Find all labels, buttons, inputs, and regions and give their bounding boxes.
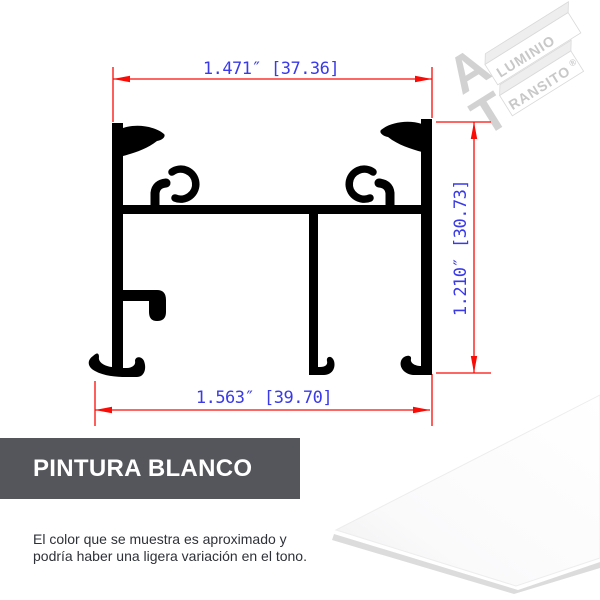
right-dim-arrow-bottom [471,356,477,373]
profile-right-clip-c [349,169,373,199]
profile-left-leg [112,123,123,373]
profile-right-foot [401,340,432,375]
bottom-dimension-label: 1.563″ [39.70] [196,388,332,408]
color-disclaimer: El color que se muestra es aproximado y … [33,531,307,565]
technical-drawing-canvas: A T LUMINIO RANSITO ® [0,0,600,600]
disclaimer-line-2: podría haber una ligera variación en el … [33,548,307,565]
brand-watermark: A T LUMINIO RANSITO ® [436,0,600,147]
right-dimension-label: 1.210″ [30.73] [451,180,471,316]
top-dim-arrow-right [415,76,432,82]
bottom-dim-arrow-right [413,407,430,413]
profile-left-top-fin [123,126,165,156]
top-dimension-label: 1.471″ [37.36] [203,59,339,79]
profile-left-foot [89,340,145,377]
product-finish-page: A T LUMINIO RANSITO ® [0,0,600,600]
profile-right-top-fin [380,122,422,152]
finish-banner: PINTURA BLANCO [0,438,300,499]
top-dim-arrow-left [113,76,130,82]
profile-cross-section [89,119,432,377]
disclaimer-line-1: El color que se muestra es aproximado y [33,531,307,548]
swatch-sheet-face [336,395,600,586]
finish-banner-label: PINTURA BLANCO [33,455,252,483]
profile-right-leg [421,119,432,373]
profile-right-clip-finger [379,183,390,207]
profile-left-clip-c [172,169,196,199]
profile-left-clip-finger [155,183,166,207]
profile-left-mid-hook [123,290,166,321]
right-dim-arrow-top [471,122,477,139]
profile-web [123,205,422,214]
profile-middle-foot [309,340,335,375]
bottom-dim-arrow-left [95,407,112,413]
color-swatch-white-sheet [332,395,600,594]
